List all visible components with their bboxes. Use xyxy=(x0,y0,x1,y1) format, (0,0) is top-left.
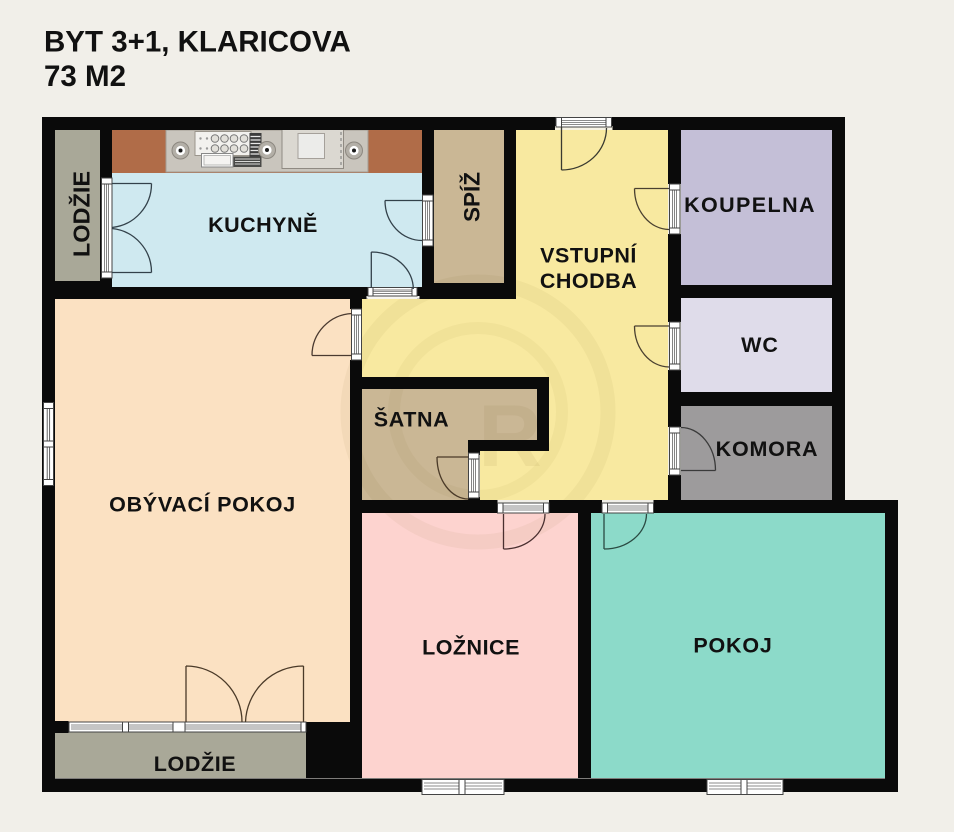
svg-text:ŠATNA: ŠATNA xyxy=(374,407,449,432)
svg-text:LOŽNICE: LOŽNICE xyxy=(422,635,520,660)
svg-text:BYT 3+1, KLARICOVA: BYT 3+1, KLARICOVA xyxy=(44,26,351,59)
svg-text:KOMORA: KOMORA xyxy=(716,437,819,461)
svg-text:OBÝVACÍ POKOJ: OBÝVACÍ POKOJ xyxy=(109,492,296,517)
svg-text:WC: WC xyxy=(741,333,779,357)
svg-text:VSTUPNÍ: VSTUPNÍ xyxy=(540,243,637,268)
svg-text:R: R xyxy=(478,386,542,485)
svg-text:KUCHYNĚ: KUCHYNĚ xyxy=(208,212,318,237)
svg-text:LODŽIE: LODŽIE xyxy=(68,171,95,257)
svg-text:POKOJ: POKOJ xyxy=(693,634,772,658)
svg-text:SPÍŽ: SPÍŽ xyxy=(460,172,485,222)
svg-text:CHODBA: CHODBA xyxy=(540,269,637,293)
svg-text:LODŽIE: LODŽIE xyxy=(154,751,236,776)
svg-text:73 M2: 73 M2 xyxy=(44,60,126,93)
svg-text:KOUPELNA: KOUPELNA xyxy=(684,193,816,217)
